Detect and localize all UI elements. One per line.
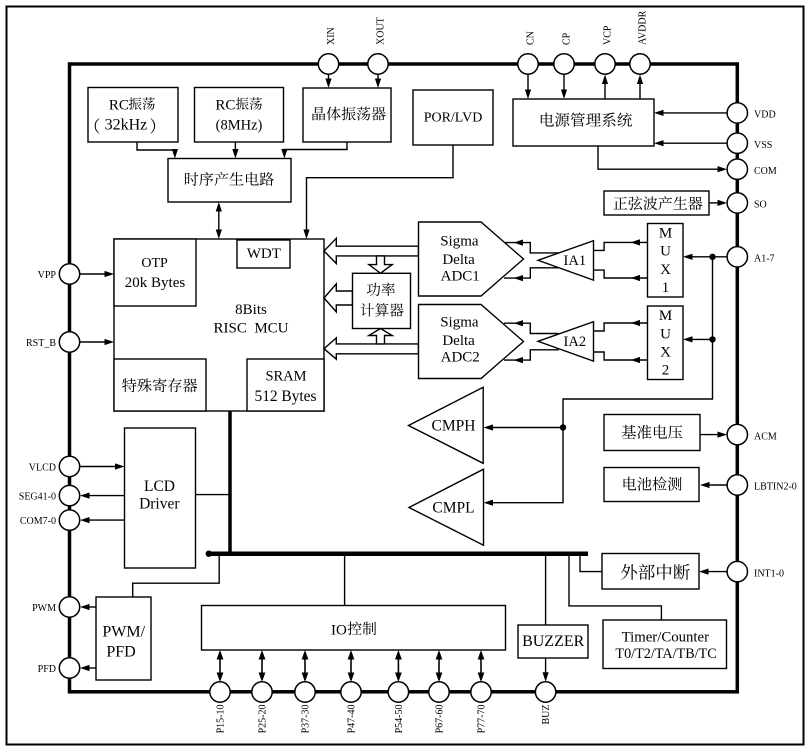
svg-text:IA1: IA1 xyxy=(564,253,587,269)
svg-text:ADC1: ADC1 xyxy=(441,269,480,285)
svg-text:VLCD: VLCD xyxy=(29,463,56,474)
svg-text:VCP: VCP xyxy=(603,25,614,45)
svg-text:(8MHz): (8MHz) xyxy=(216,118,263,134)
svg-text:Sigma: Sigma xyxy=(440,234,479,250)
svg-text:XIN: XIN xyxy=(326,27,337,45)
svg-text:SEG41-0: SEG41-0 xyxy=(19,492,56,503)
svg-text:CMPL: CMPL xyxy=(432,499,474,516)
svg-text:20k Bytes: 20k Bytes xyxy=(125,275,186,291)
svg-text:512 Bytes: 512 Bytes xyxy=(255,388,317,405)
svg-text:RST_B: RST_B xyxy=(26,338,56,349)
svg-text:IA2: IA2 xyxy=(564,334,587,350)
svg-text:P37-30: P37-30 xyxy=(301,705,312,734)
svg-text:M: M xyxy=(659,308,672,324)
svg-text:AVDDR: AVDDR xyxy=(638,10,649,45)
svg-text:OTP: OTP xyxy=(141,256,168,271)
svg-text:P15-10: P15-10 xyxy=(216,705,227,734)
svg-text:P25-20: P25-20 xyxy=(258,705,269,734)
svg-text:32kHz: 32kHz xyxy=(105,117,148,134)
svg-text:SO: SO xyxy=(754,200,767,211)
svg-text:INT1-0: INT1-0 xyxy=(754,568,784,579)
svg-text:T0/T2/TA/TB/TC: T0/T2/TA/TB/TC xyxy=(615,646,716,662)
svg-text:IO: IO xyxy=(331,622,347,638)
svg-text:POR/LVD: POR/LVD xyxy=(424,111,483,126)
svg-text:PWM/: PWM/ xyxy=(102,624,145,641)
svg-text:P47-40: P47-40 xyxy=(347,705,358,734)
svg-text:CMPH: CMPH xyxy=(432,417,476,434)
svg-text:U: U xyxy=(660,244,671,260)
svg-text:PWM: PWM xyxy=(32,603,56,614)
svg-text:RC: RC xyxy=(215,97,235,113)
svg-text:1: 1 xyxy=(662,280,670,296)
svg-text:COM7-0: COM7-0 xyxy=(20,516,56,527)
svg-text:X: X xyxy=(660,344,671,360)
svg-text:XOUT: XOUT xyxy=(376,17,387,45)
svg-text:RC: RC xyxy=(109,97,129,113)
svg-text:8Bits: 8Bits xyxy=(235,302,267,318)
svg-text:VPP: VPP xyxy=(38,270,57,281)
svg-text:VSS: VSS xyxy=(754,140,772,151)
svg-text:LCD: LCD xyxy=(144,478,175,495)
svg-text:A1-7: A1-7 xyxy=(754,254,775,265)
svg-text:CP: CP xyxy=(562,32,573,45)
svg-text:Timer/Counter: Timer/Counter xyxy=(622,630,709,646)
svg-text:VDD: VDD xyxy=(754,110,776,121)
svg-text:ADC2: ADC2 xyxy=(441,350,480,366)
svg-text:P54-50: P54-50 xyxy=(394,705,405,734)
svg-text:X: X xyxy=(660,262,671,278)
svg-text:PFD: PFD xyxy=(106,644,135,661)
svg-text:Delta: Delta xyxy=(442,252,475,268)
svg-text:BUZZER: BUZZER xyxy=(522,633,585,650)
svg-text:P67-60: P67-60 xyxy=(435,705,446,734)
svg-text:CN: CN xyxy=(526,31,537,45)
svg-text:BUZ: BUZ xyxy=(541,705,552,725)
svg-text:WDT: WDT xyxy=(247,246,281,262)
svg-text:U: U xyxy=(660,326,671,342)
svg-text:Sigma: Sigma xyxy=(440,315,479,331)
svg-text:SRAM: SRAM xyxy=(265,369,306,385)
svg-text:COM: COM xyxy=(754,166,777,177)
svg-text:2: 2 xyxy=(662,363,670,379)
svg-text:P77-70: P77-70 xyxy=(477,705,488,734)
svg-text:PFD: PFD xyxy=(38,664,56,675)
svg-text:M: M xyxy=(659,226,672,242)
svg-text:Delta: Delta xyxy=(442,333,475,349)
svg-text:Driver: Driver xyxy=(139,496,180,513)
svg-text:RISC MCU: RISC MCU xyxy=(213,321,288,337)
svg-text:LBTIN2-0: LBTIN2-0 xyxy=(754,482,797,493)
svg-text:ACM: ACM xyxy=(754,431,777,442)
